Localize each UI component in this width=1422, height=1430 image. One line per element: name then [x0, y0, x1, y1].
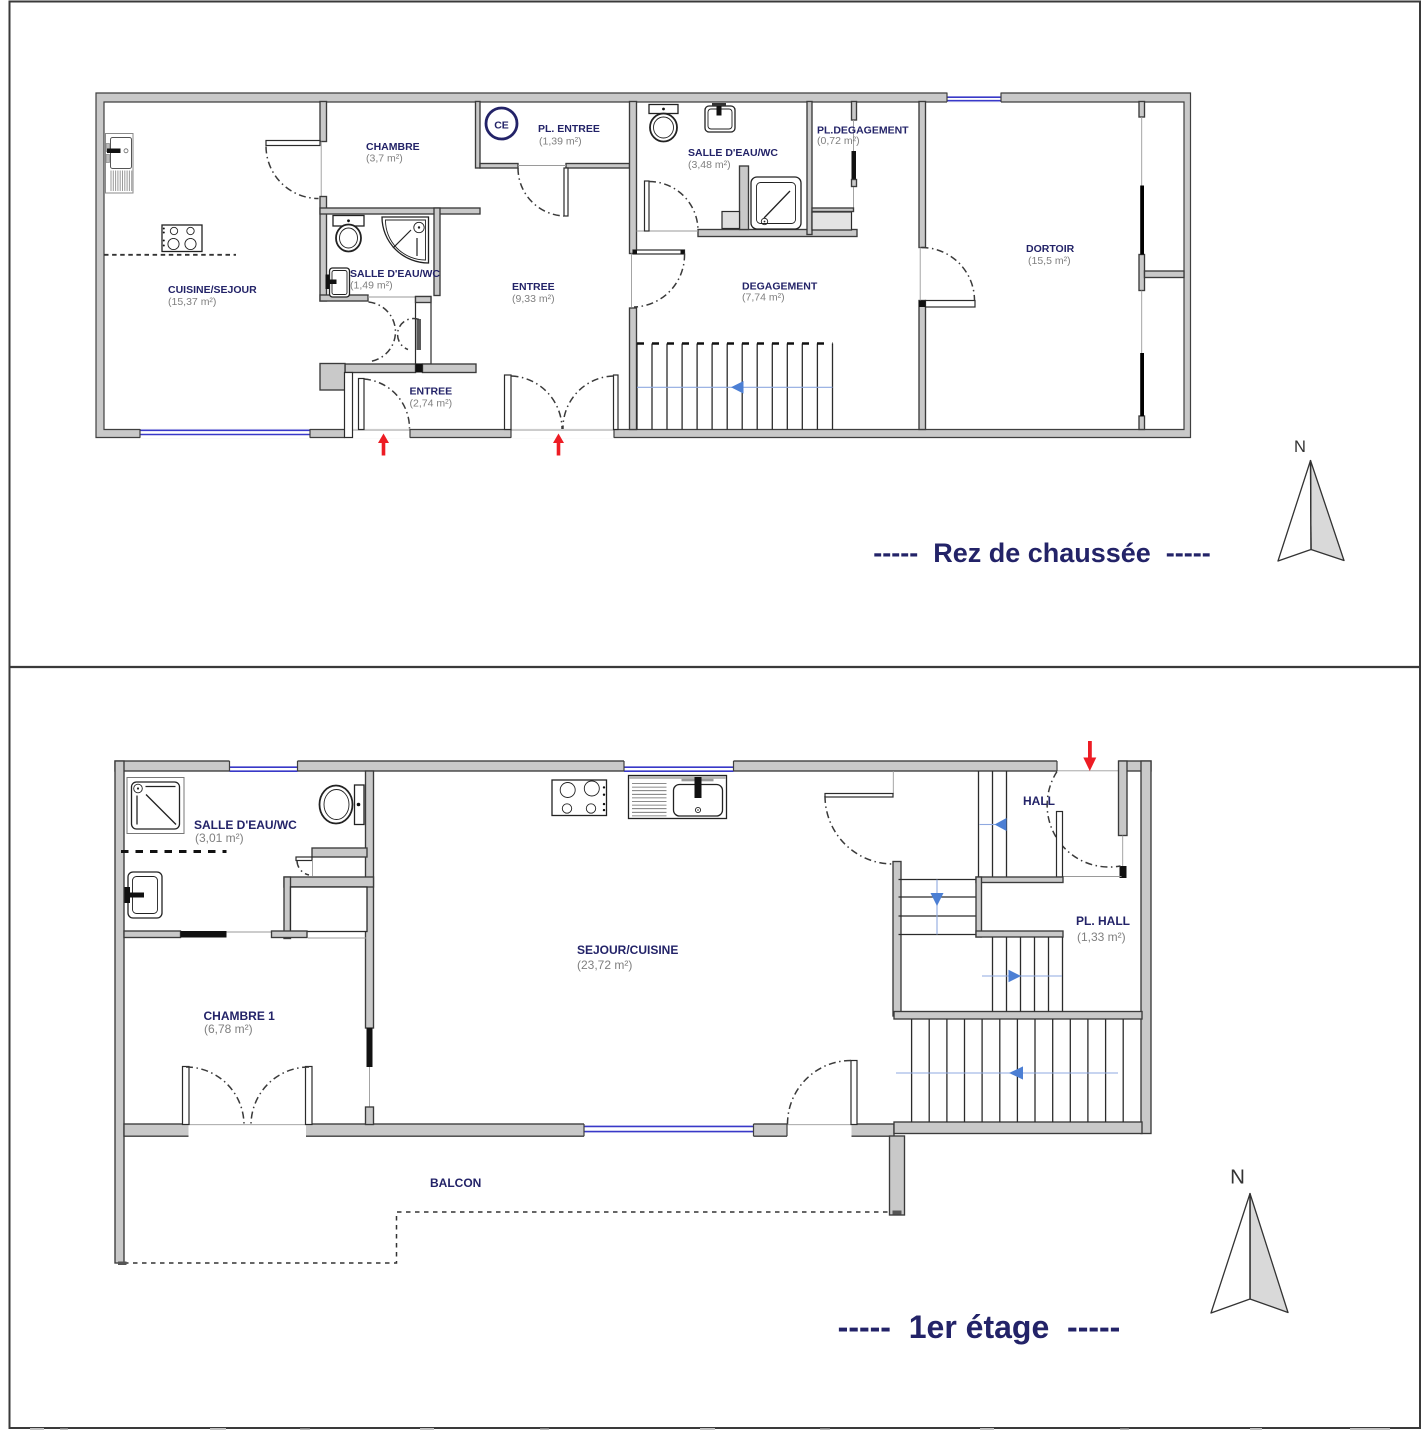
- svg-text:SALLE D'EAU/WC: SALLE D'EAU/WC: [350, 268, 440, 280]
- svg-text:(2,74 m²): (2,74 m²): [410, 398, 453, 410]
- svg-text:BALCON: BALCON: [430, 1176, 481, 1190]
- svg-text:PL. HALL: PL. HALL: [1076, 914, 1130, 928]
- svg-text:(15,37 m²): (15,37 m²): [168, 296, 216, 308]
- svg-text:(6,78 m²): (6,78 m²): [204, 1022, 253, 1036]
- svg-text:(23,72 m²): (23,72 m²): [577, 958, 632, 972]
- svg-text:CHAMBRE 1: CHAMBRE 1: [204, 1009, 276, 1023]
- svg-text:SALLE D'EAU/WC: SALLE D'EAU/WC: [688, 147, 778, 159]
- svg-text:(1,39 m²): (1,39 m²): [539, 136, 582, 148]
- svg-text:CHAMBRE: CHAMBRE: [366, 141, 420, 153]
- svg-text:ENTREE: ENTREE: [410, 386, 453, 398]
- svg-text:SEJOUR/CUISINE: SEJOUR/CUISINE: [577, 943, 678, 957]
- svg-text:(15,5 m²): (15,5 m²): [1028, 255, 1071, 267]
- svg-text:(0,72 m²): (0,72 m²): [817, 135, 860, 147]
- svg-text:CUISINE/SEJOUR: CUISINE/SEJOUR: [168, 284, 257, 296]
- svg-text:CE: CE: [494, 120, 509, 132]
- svg-text:HALL: HALL: [1023, 794, 1055, 808]
- svg-text:(3,01 m²): (3,01 m²): [195, 831, 244, 845]
- svg-text:N: N: [1294, 438, 1306, 456]
- svg-text:PL. ENTREE: PL. ENTREE: [538, 123, 600, 135]
- svg-text:N: N: [1230, 1166, 1245, 1189]
- svg-text:ENTREE: ENTREE: [512, 281, 555, 293]
- svg-text:(3,48 m²): (3,48 m²): [688, 159, 731, 171]
- svg-text:(1,49 m²): (1,49 m²): [350, 280, 393, 292]
- svg-text:----- Rez de chaussée -----: ----- Rez de chaussée -----: [873, 538, 1211, 568]
- svg-text:(7,74 m²): (7,74 m²): [742, 292, 785, 304]
- svg-text:DORTOIR: DORTOIR: [1026, 243, 1075, 255]
- svg-text:----- 1er étage -----: ----- 1er étage -----: [838, 1309, 1121, 1345]
- svg-text:SALLE D'EAU/WC: SALLE D'EAU/WC: [194, 818, 297, 832]
- svg-text:(9,33 m²): (9,33 m²): [512, 293, 555, 305]
- svg-text:(3,7 m²): (3,7 m²): [366, 153, 403, 165]
- svg-text:(1,33 m²): (1,33 m²): [1077, 930, 1126, 944]
